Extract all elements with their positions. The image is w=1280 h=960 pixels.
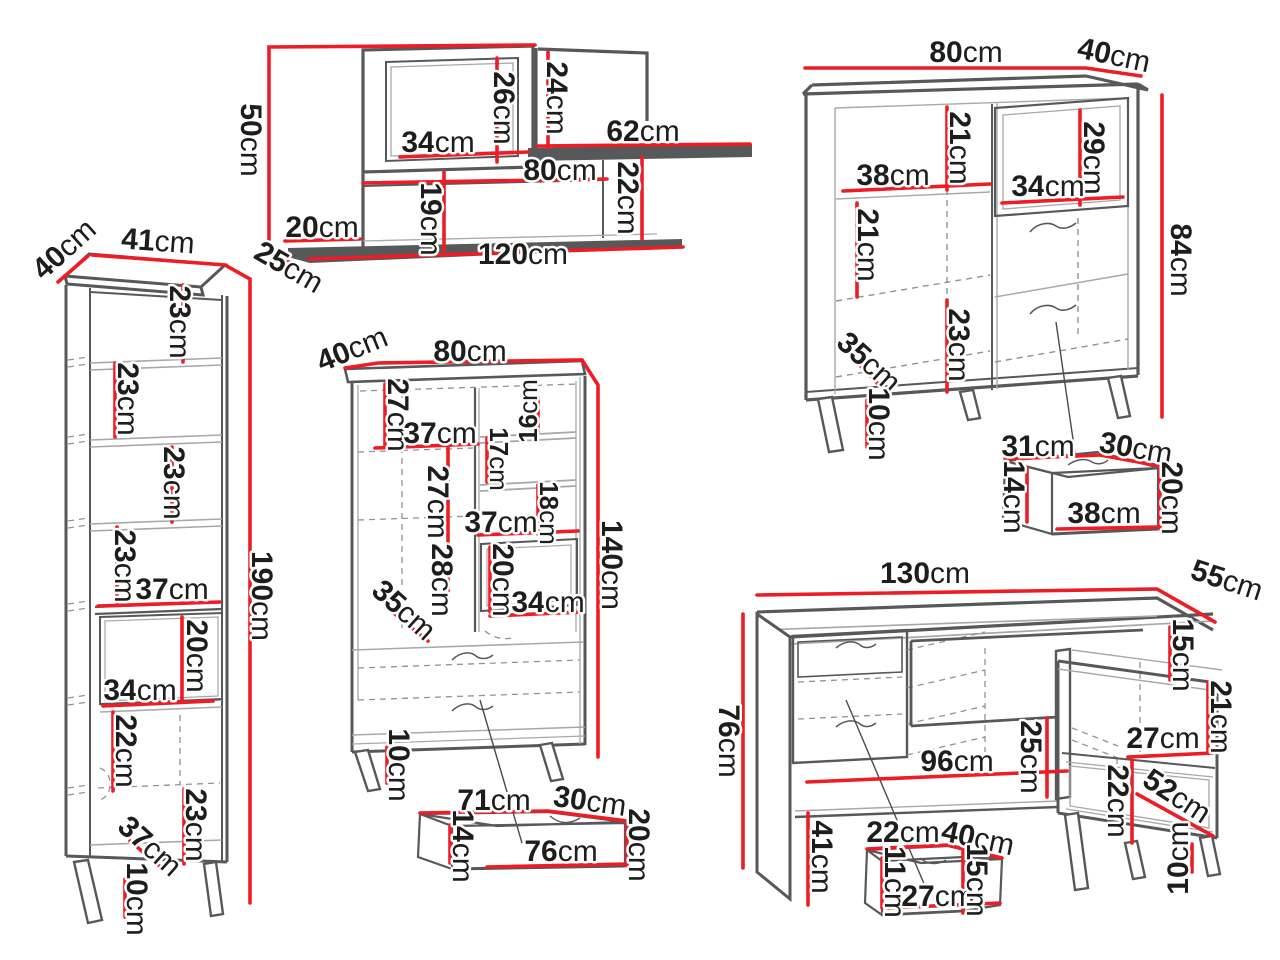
desk-opening-frame bbox=[911, 630, 1143, 726]
dim-sideboard-38: 38cm bbox=[856, 159, 929, 192]
diagram-canvas: 50cm 26cm 24cm 34cm 62cm 80cm 19cm 22cm … bbox=[0, 0, 1280, 960]
dim-cabinet-37-top: 37cm bbox=[403, 417, 476, 450]
dim-cabinet-drawer-14: 14cm bbox=[447, 809, 480, 882]
furniture-dimension-diagram: 50cm 26cm 24cm 34cm 62cm 80cm 19cm 22cm … bbox=[0, 0, 1280, 960]
cabinet-drawer-pointer-line bbox=[480, 700, 522, 843]
dim-sideboard-drawer-38: 38cm bbox=[1067, 497, 1140, 530]
cabinet-drawer-handle bbox=[550, 816, 580, 823]
cabinet-drawer-handles bbox=[452, 653, 493, 711]
dim-cabinet-drawer-30: 30cm bbox=[551, 780, 628, 823]
sideboard-drawer-handles bbox=[1030, 223, 1076, 314]
dim-cabinet-16: 16cm bbox=[513, 379, 543, 443]
dim-desk-76: 76cm bbox=[713, 704, 746, 777]
dim-wall-unit-50: 50cm bbox=[235, 103, 268, 176]
dim-cabinet-10: 10cm bbox=[383, 728, 416, 801]
desk-left-panel bbox=[757, 614, 790, 899]
dim-sideboard-84: 84cm bbox=[1165, 223, 1198, 296]
dim-wall-unit-20: 20cm bbox=[285, 211, 358, 244]
dim-desk-52: 52cm bbox=[1137, 762, 1217, 830]
dim-desk-drawer-15: 15cm bbox=[961, 843, 994, 916]
dim-desk-130: 130cm bbox=[880, 557, 970, 590]
dim-bookcase-23-2: 23cm bbox=[112, 362, 145, 435]
dim-desk-55: 55cm bbox=[1187, 553, 1267, 607]
dim-desk-15: 15cm bbox=[1167, 618, 1200, 691]
dim-cabinet-17: 17cm bbox=[484, 427, 514, 491]
dim-wall-unit-24: 24cm bbox=[541, 61, 574, 134]
dim-sideboard-21-top: 21cm bbox=[944, 111, 977, 184]
dim-wall-unit-26: 26cm bbox=[488, 71, 521, 144]
dim-cabinet-drawer-76: 76cm bbox=[524, 835, 597, 868]
desk-drawer-handles bbox=[836, 642, 876, 727]
dimension-labels: 50cm 26cm 24cm 34cm 62cm 80cm 19cm 22cm … bbox=[26, 31, 1267, 935]
dim-wall-unit-25: 25cm bbox=[249, 234, 329, 299]
dim-sideboard-21-left: 21cm bbox=[852, 208, 885, 281]
dim-desk-25: 25cm bbox=[1015, 720, 1048, 793]
dim-bookcase-37: 37cm bbox=[135, 573, 208, 606]
dim-cabinet-27-mid: 27cm bbox=[422, 465, 455, 538]
dim-cabinet-80: 80cm bbox=[433, 335, 506, 368]
dim-sideboard-80: 80cm bbox=[929, 36, 1002, 69]
dim-desk-96: 96cm bbox=[920, 745, 993, 778]
dim-wall-unit-120: 120cm bbox=[478, 238, 568, 271]
dim-wall-unit-62: 62cm bbox=[606, 115, 679, 148]
dim-desk-10: 10cm bbox=[1162, 821, 1195, 894]
dim-sideboard-34: 34cm bbox=[1011, 170, 1084, 203]
dim-cabinet-34: 34cm bbox=[511, 586, 584, 619]
dim-sideboard-10: 10cm bbox=[863, 387, 896, 460]
dim-bookcase-20: 20cm bbox=[181, 619, 214, 692]
desk-top-outline bbox=[757, 598, 1213, 637]
dim-cabinet-28: 28cm bbox=[426, 543, 459, 616]
dim-wall-unit-19: 19cm bbox=[415, 182, 448, 255]
dim-desk-41: 41cm bbox=[806, 820, 839, 893]
dim-bookcase-10: 10cm bbox=[121, 862, 154, 935]
dim-bookcase-41: 41cm bbox=[120, 222, 195, 260]
dim-desk-drawer-22: 22cm bbox=[866, 816, 939, 849]
dim-sideboard-drawer-14: 14cm bbox=[998, 460, 1031, 533]
dim-bookcase-34: 34cm bbox=[103, 674, 176, 707]
dim-cabinet-37-right: 37cm bbox=[464, 506, 537, 539]
dim-wall-unit-34: 34cm bbox=[401, 126, 474, 159]
dim-sideboard-40: 40cm bbox=[1075, 31, 1154, 79]
dim-bookcase-23-3: 23cm bbox=[158, 446, 191, 519]
dim-sideboard-drawer-20: 20cm bbox=[1156, 461, 1189, 534]
dim-sideboard-drawer-31: 31cm bbox=[1001, 430, 1074, 463]
dim-cabinet-140: 140cm bbox=[596, 520, 629, 610]
dim-bookcase-22: 22cm bbox=[110, 714, 143, 787]
dim-cabinet-drawer-20: 20cm bbox=[623, 808, 656, 881]
dim-bookcase-190: 190cm bbox=[246, 551, 279, 641]
dim-wall-unit-80: 80cm bbox=[523, 154, 596, 187]
dim-bookcase-23-1: 23cm bbox=[164, 285, 197, 358]
desk-left-pedestal bbox=[793, 630, 907, 763]
dim-sideboard-23: 23cm bbox=[943, 308, 976, 381]
dim-bookcase-23-5: 23cm bbox=[180, 788, 213, 861]
dim-desk-21: 21cm bbox=[1205, 680, 1238, 753]
dim-cabinet-18: 18cm bbox=[534, 481, 564, 545]
dim-desk-22: 22cm bbox=[1102, 764, 1135, 837]
cabinet-drawer-lines bbox=[352, 642, 585, 735]
dim-desk-27: 27cm bbox=[1126, 722, 1199, 755]
dim-wall-unit-22: 22cm bbox=[612, 161, 645, 234]
